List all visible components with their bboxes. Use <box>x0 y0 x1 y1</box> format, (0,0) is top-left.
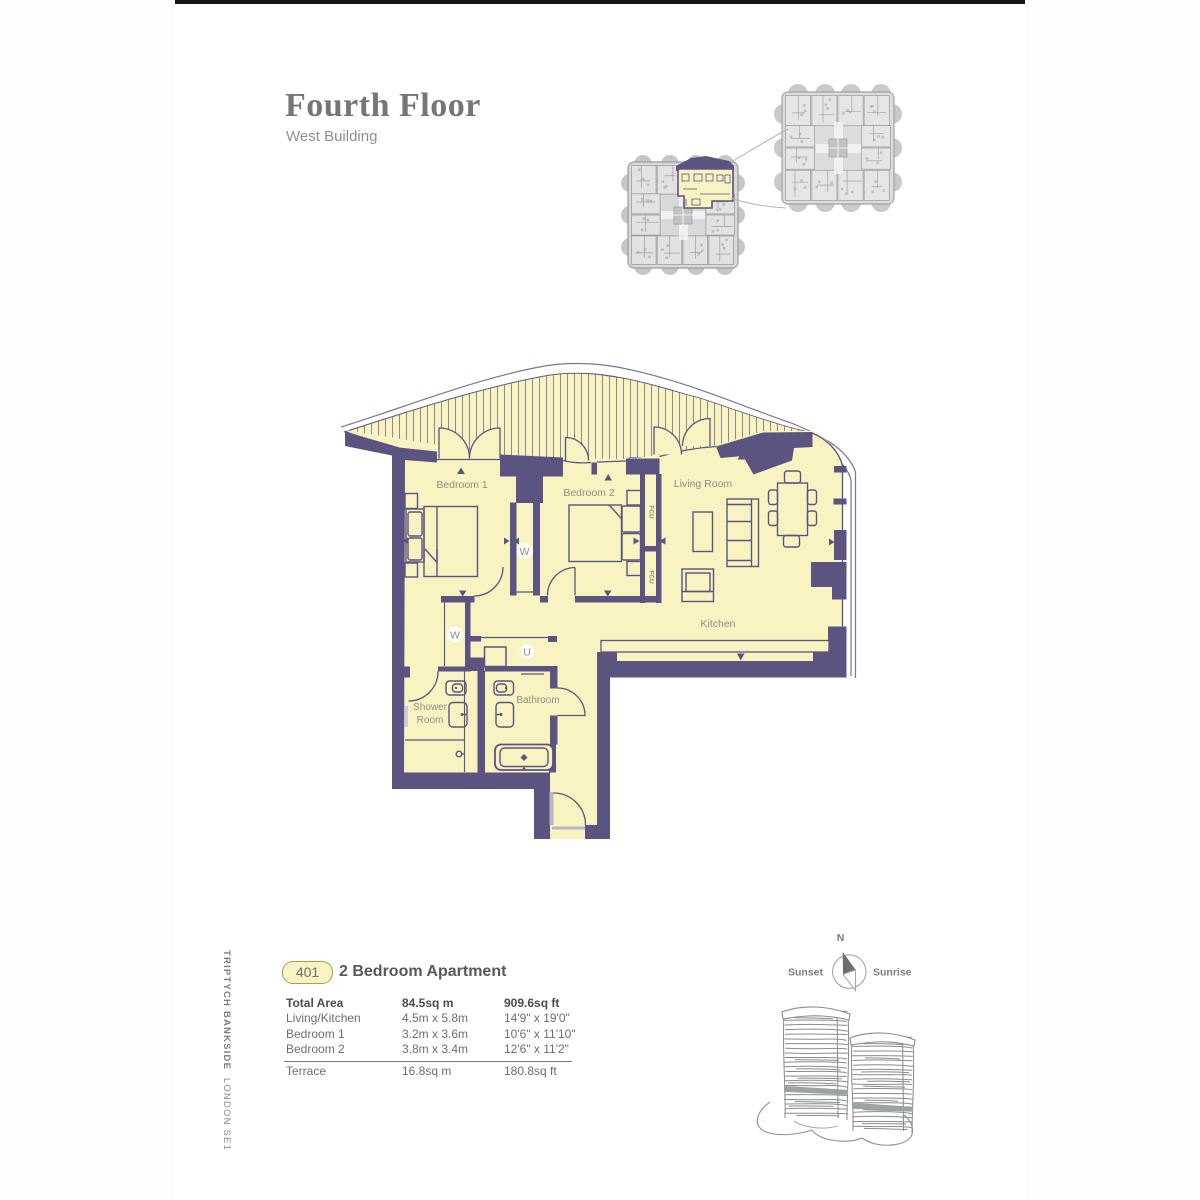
svg-text:W: W <box>520 546 530 558</box>
svg-text:Bathroom: Bathroom <box>516 695 559 706</box>
svg-text:Sunrise: Sunrise <box>873 967 912 979</box>
svg-text:Room: Room <box>417 715 444 726</box>
svg-text:N: N <box>837 932 845 944</box>
svg-text:Bedroom 1: Bedroom 1 <box>436 479 488 491</box>
svg-text:Sunset: Sunset <box>788 967 824 979</box>
svg-text:Shower: Shower <box>413 702 448 713</box>
svg-text:FCU: FCU <box>648 570 655 584</box>
svg-text:FCU: FCU <box>648 505 655 519</box>
svg-text:Bedroom 2: Bedroom 2 <box>563 487 615 499</box>
svg-text:W: W <box>450 630 460 642</box>
svg-text:Kitchen: Kitchen <box>700 618 735 630</box>
svg-text:U: U <box>523 647 531 659</box>
svg-text:Living Room: Living Room <box>674 478 733 490</box>
